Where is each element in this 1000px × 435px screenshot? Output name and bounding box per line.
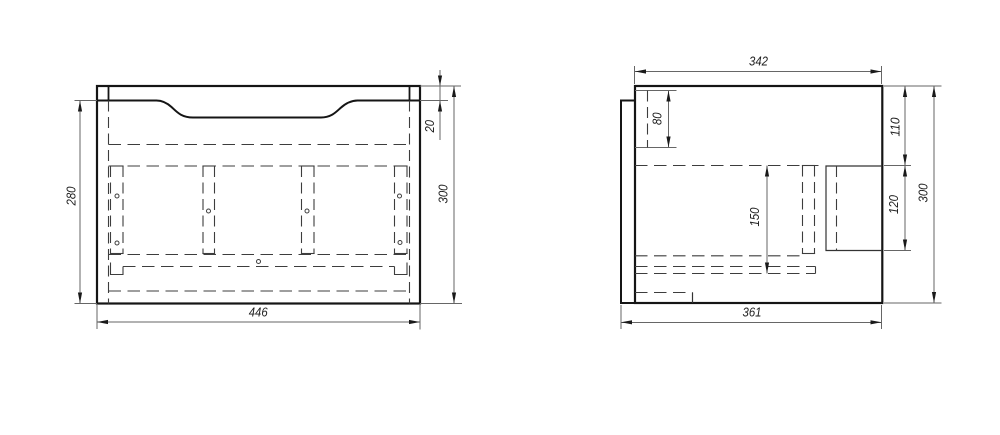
svg-text:120: 120: [886, 194, 901, 214]
svg-text:342: 342: [749, 54, 769, 69]
svg-text:80: 80: [649, 112, 664, 125]
svg-text:20: 20: [422, 119, 437, 133]
svg-text:110: 110: [887, 117, 902, 137]
svg-text:300: 300: [916, 183, 931, 203]
svg-text:300: 300: [435, 184, 450, 204]
svg-text:150: 150: [747, 207, 762, 227]
svg-text:446: 446: [249, 305, 269, 320]
svg-text:280: 280: [63, 186, 78, 206]
svg-text:361: 361: [743, 304, 762, 319]
